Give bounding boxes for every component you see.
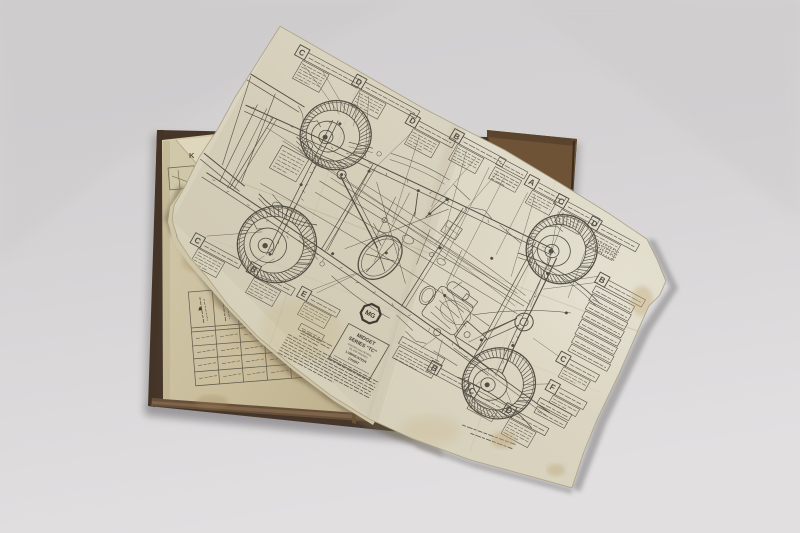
svg-text:▲: ▲ <box>196 305 203 313</box>
svg-text:K: K <box>189 151 195 160</box>
